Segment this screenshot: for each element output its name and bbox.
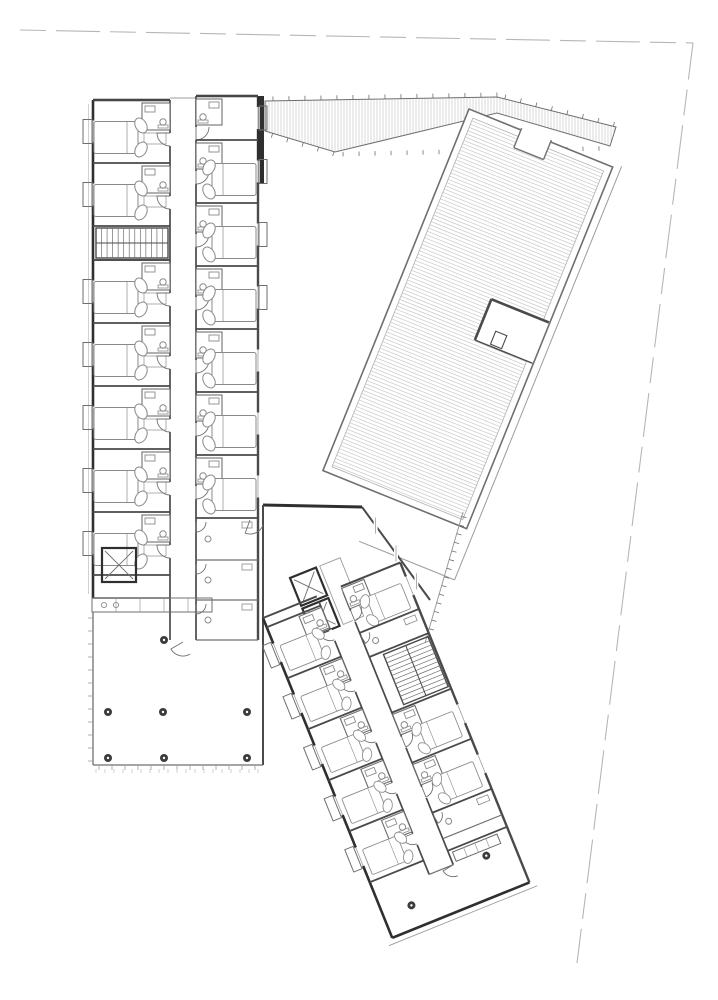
door-opening	[169, 419, 172, 432]
fixture	[162, 711, 164, 713]
door-opening	[169, 293, 172, 306]
bed-body	[94, 534, 138, 566]
bed-body	[94, 122, 138, 154]
fixture	[107, 711, 109, 713]
column-icon	[104, 708, 112, 716]
column-icon	[104, 754, 112, 762]
plan-sheet	[0, 0, 718, 1000]
entry-north-wall	[263, 505, 362, 507]
bed-body	[212, 353, 256, 385]
bathroom	[196, 99, 222, 125]
bed-body	[212, 164, 256, 196]
column-icon	[243, 708, 251, 716]
door-opening	[169, 545, 172, 558]
bed-body	[94, 471, 138, 503]
bed-body	[94, 408, 138, 440]
fixture	[246, 711, 248, 713]
fixture	[163, 639, 165, 641]
column-icon	[160, 636, 168, 644]
bed-body	[212, 416, 256, 448]
column-icon	[159, 708, 167, 716]
door-opening	[169, 133, 172, 146]
bed-body	[212, 479, 256, 511]
column-icon	[160, 754, 168, 762]
door-opening	[169, 482, 172, 495]
bed-body	[212, 227, 256, 259]
door-opening	[169, 356, 172, 369]
fixture	[163, 757, 165, 759]
floor-plan-drawing	[0, 0, 718, 1000]
bed-body	[94, 185, 138, 217]
fixture	[107, 757, 109, 759]
door-opening	[169, 196, 172, 209]
fixture	[246, 757, 248, 759]
bed-body	[212, 290, 256, 322]
bed-body	[94, 345, 138, 377]
bed-body	[94, 282, 138, 314]
column-icon	[243, 754, 251, 762]
